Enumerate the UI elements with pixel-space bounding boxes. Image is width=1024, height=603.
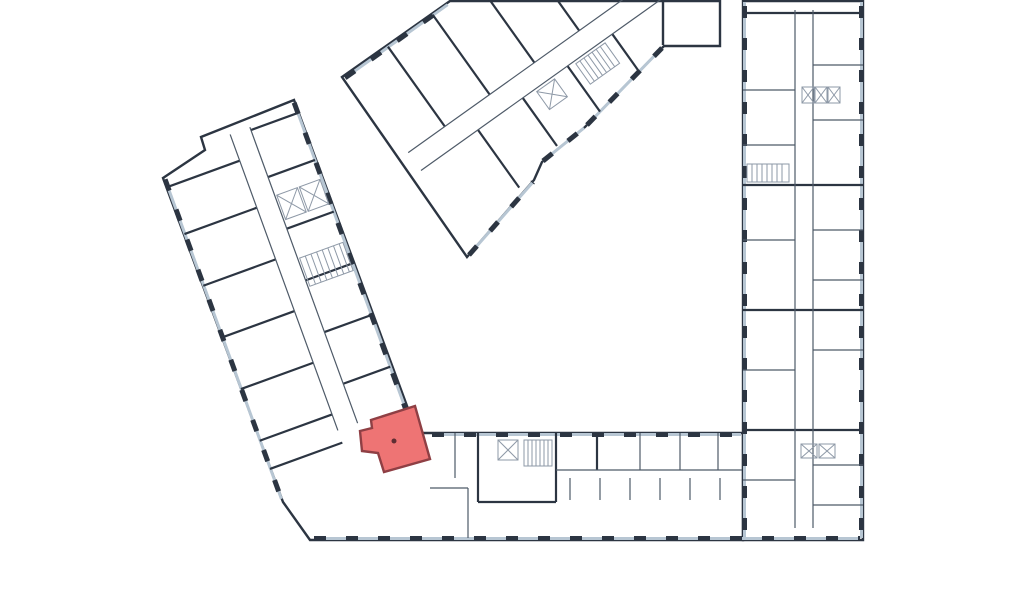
floor-plan-canvas	[0, 0, 1024, 603]
floor-plan-page	[0, 0, 1024, 603]
right-wing-outline	[743, 1, 863, 540]
unit-marker-dot	[392, 439, 397, 444]
